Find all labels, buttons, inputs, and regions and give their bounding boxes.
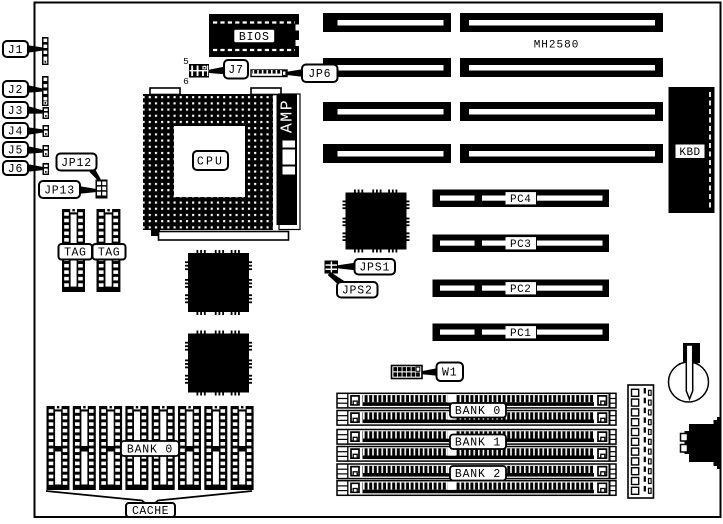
svg-text:JPS2: JPS2 [342, 285, 373, 298]
svg-text:JP13: JP13 [44, 184, 75, 197]
svg-text:BIOS: BIOS [239, 31, 270, 44]
svg-text:PC3: PC3 [510, 239, 531, 251]
svg-text:J6: J6 [8, 163, 23, 176]
svg-text:J1: J1 [8, 44, 23, 57]
svg-text:JPS1: JPS1 [359, 262, 390, 275]
svg-text:6: 6 [183, 76, 189, 87]
svg-text:BANK 2: BANK 2 [455, 468, 501, 481]
svg-text:TAG: TAG [64, 247, 86, 260]
svg-text:MH2580: MH2580 [534, 40, 580, 52]
svg-text:AMP: AMP [278, 99, 297, 133]
svg-text:BANK 0: BANK 0 [127, 443, 173, 456]
svg-text:BANK 1: BANK 1 [455, 437, 501, 450]
svg-text:JP12: JP12 [61, 157, 92, 170]
svg-text:TAG: TAG [98, 247, 120, 260]
svg-text:J4: J4 [8, 125, 23, 138]
svg-text:JP6: JP6 [308, 68, 331, 81]
svg-text:J2: J2 [8, 84, 23, 97]
svg-text:CPU: CPU [197, 155, 224, 168]
svg-text:BANK 0: BANK 0 [455, 405, 501, 418]
svg-text:KBD: KBD [679, 147, 700, 159]
svg-text:CACHE: CACHE [132, 505, 169, 518]
svg-text:J3: J3 [8, 105, 23, 118]
svg-text:J5: J5 [8, 144, 23, 157]
svg-text:J7: J7 [228, 64, 243, 77]
svg-text:W1: W1 [442, 367, 457, 380]
svg-text:PC2: PC2 [510, 284, 531, 296]
svg-text:PC1: PC1 [510, 328, 531, 340]
svg-text:PC4: PC4 [510, 194, 531, 206]
svg-text:5: 5 [183, 56, 189, 67]
